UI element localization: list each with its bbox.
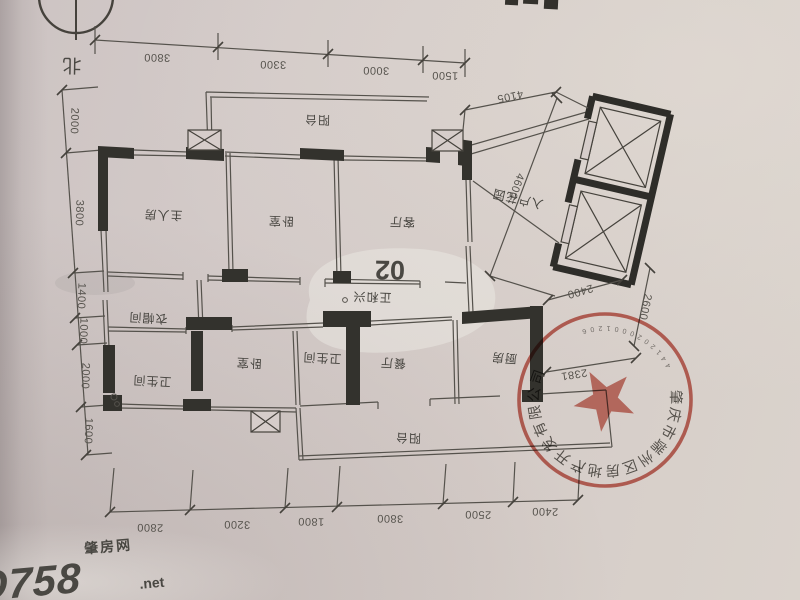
site-watermark-tld: .net <box>139 574 166 592</box>
room-bath1: 卫生间 <box>132 373 172 389</box>
dim-kitchen-right: 2381 <box>560 366 588 382</box>
dim-top-2: 3300 <box>260 58 287 70</box>
dims-diagonal: 4105 4600 2400 2600 2381 <box>460 87 655 382</box>
dim-bottom-3: 1800 <box>298 515 325 527</box>
dim-left-2: 3800 <box>73 200 86 227</box>
floorplan-drawing: 正和兴 北 3800 3300 3000 1500 2000 3800 1400… <box>0 0 800 600</box>
north-label: 北 <box>62 54 81 76</box>
lift-door-1 <box>580 121 596 160</box>
room-kitchen: 厨房 <box>490 350 517 367</box>
dim-left-5: 2000 <box>79 363 92 390</box>
cropped-title-fragment <box>505 0 558 9</box>
dim-top-4: 1500 <box>432 69 459 81</box>
dim-row-top: 3800 3300 3000 1500 <box>90 26 470 81</box>
compass: 北 <box>39 0 113 76</box>
paper-smudge <box>55 271 135 295</box>
room-living: 客厅 <box>389 214 416 230</box>
lift-door-2 <box>561 205 577 244</box>
room-bedroom1: 卧室 <box>268 213 295 229</box>
dim-left-1: 2000 <box>68 108 81 135</box>
dim-bottom-2: 3200 <box>224 518 251 530</box>
dim-bottom-1: 2800 <box>137 521 164 533</box>
dim-row-bottom: 2800 3200 1800 3800 2500 2400 <box>105 460 583 533</box>
stamp-star <box>571 371 638 436</box>
room-master: 主人房 <box>143 207 183 223</box>
site-watermark: 肇房网 hO758 .net <box>0 534 166 600</box>
room-dining: 餐厅 <box>380 355 407 371</box>
room-balcony-top: 阳台 <box>304 113 330 128</box>
dim-top-3: 3000 <box>363 64 390 76</box>
svg-text:4412020001206: 4412020001206 <box>573 320 676 369</box>
room-balcony-bottom: 阳台 <box>395 430 422 446</box>
dim-bottom-6: 2400 <box>532 505 559 517</box>
room-bath2: 卫生间 <box>302 350 342 366</box>
dim-lift-width: 2400 <box>566 282 595 301</box>
dim-lift-right: 2600 <box>636 293 653 321</box>
floorplan-photo: 正和兴 北 3800 3300 3000 1500 2000 3800 1400… <box>0 0 800 600</box>
unit-number: 02 <box>375 255 406 286</box>
room-bedroom2: 卧室 <box>236 355 263 371</box>
dim-left-4: 1000 <box>77 318 90 345</box>
dim-bottom-5: 2500 <box>465 508 492 520</box>
room-cloakroom: 衣帽间 <box>128 310 168 327</box>
stamp-serial-text: 4412020001206 <box>573 320 676 369</box>
dim-left-6: 1600 <box>82 418 95 445</box>
dim-entry: 4105 <box>496 87 524 104</box>
dim-bottom-4: 3800 <box>377 512 404 524</box>
site-watermark-cn: 肇房网 <box>83 536 132 556</box>
dim-top-1: 3800 <box>144 51 171 63</box>
watermark-center-text: 正和兴 <box>352 289 391 304</box>
site-watermark-logo: hO758 <box>0 554 82 600</box>
